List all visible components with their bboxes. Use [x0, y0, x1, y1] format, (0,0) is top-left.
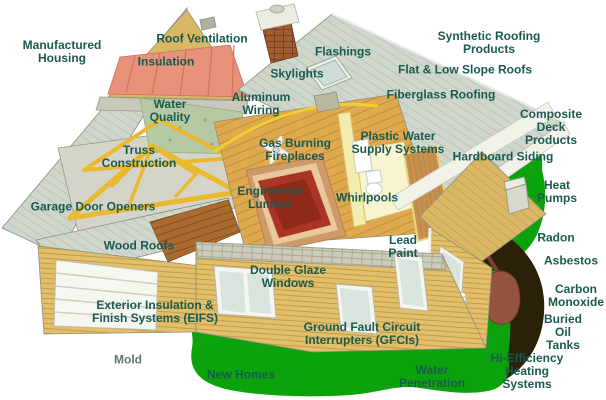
label-aluminum-wiring: Aluminum Wiring — [232, 91, 291, 117]
label-ground-fault-circuit-interrupters: Ground Fault Circuit Interrupters (GFCIs… — [304, 321, 421, 347]
labels-layer: Manufactured HousingRoof VentilationInsu… — [0, 0, 606, 400]
label-double-glaze-windows: Double Glaze Windows — [250, 264, 326, 290]
label-insulation: Insulation — [138, 55, 195, 68]
label-asbestos: Asbestos — [544, 254, 598, 267]
label-roof-ventilation: Roof Ventilation — [156, 32, 247, 45]
label-exterior-insulation-finish-systems: Exterior Insulation & Finish Systems (EI… — [92, 299, 218, 325]
label-flashings: Flashings — [315, 45, 371, 58]
label-new-homes: New Homes — [207, 368, 275, 381]
label-wood-roofs: Wood Roofs — [104, 239, 174, 252]
label-plastic-water-supply-systems: Plastic Water Supply Systems — [352, 130, 445, 156]
label-truss-construction: Truss Construction — [102, 144, 177, 170]
label-synthetic-roofing-products: Synthetic Roofing Products — [431, 30, 548, 56]
label-water-penetration: Water Penetration — [399, 364, 465, 390]
label-lead-paint: Lead Paint — [388, 234, 417, 260]
label-manufactured-housing: Manufactured Housing — [23, 39, 102, 65]
label-buried-oil-tanks: Buried Oil Tanks — [542, 313, 585, 353]
label-hi-efficiency-heating-systems: Hi-Efficiency Heating Systems — [488, 352, 567, 392]
label-whirlpools: Whirlpools — [336, 191, 398, 204]
label-mold: Mold — [114, 353, 142, 366]
label-composite-deck-products: Composite Deck Products — [520, 108, 582, 148]
label-radon: Radon — [537, 231, 574, 244]
label-hardboard-siding: Hardboard Siding — [453, 150, 554, 163]
label-gas-burning-fireplaces: Gas Burning Fireplaces — [259, 137, 331, 163]
label-skylights: Skylights — [270, 67, 323, 80]
label-garage-door-openers: Garage Door Openers — [31, 200, 156, 213]
label-flat-low-slope-roofs: Flat & Low Slope Roofs — [398, 63, 532, 76]
house-diagram: Manufactured HousingRoof VentilationInsu… — [0, 0, 606, 400]
label-water-quality: Water Quality — [150, 98, 191, 124]
label-engineered-lumber: Engineered Lumber — [237, 185, 302, 211]
label-carbon-monoxide: Carbon Monoxide — [548, 283, 604, 309]
label-fiberglass-roofing: Fiberglass Roofing — [387, 88, 496, 101]
label-heat-pumps: Heat Pumps — [537, 179, 577, 205]
